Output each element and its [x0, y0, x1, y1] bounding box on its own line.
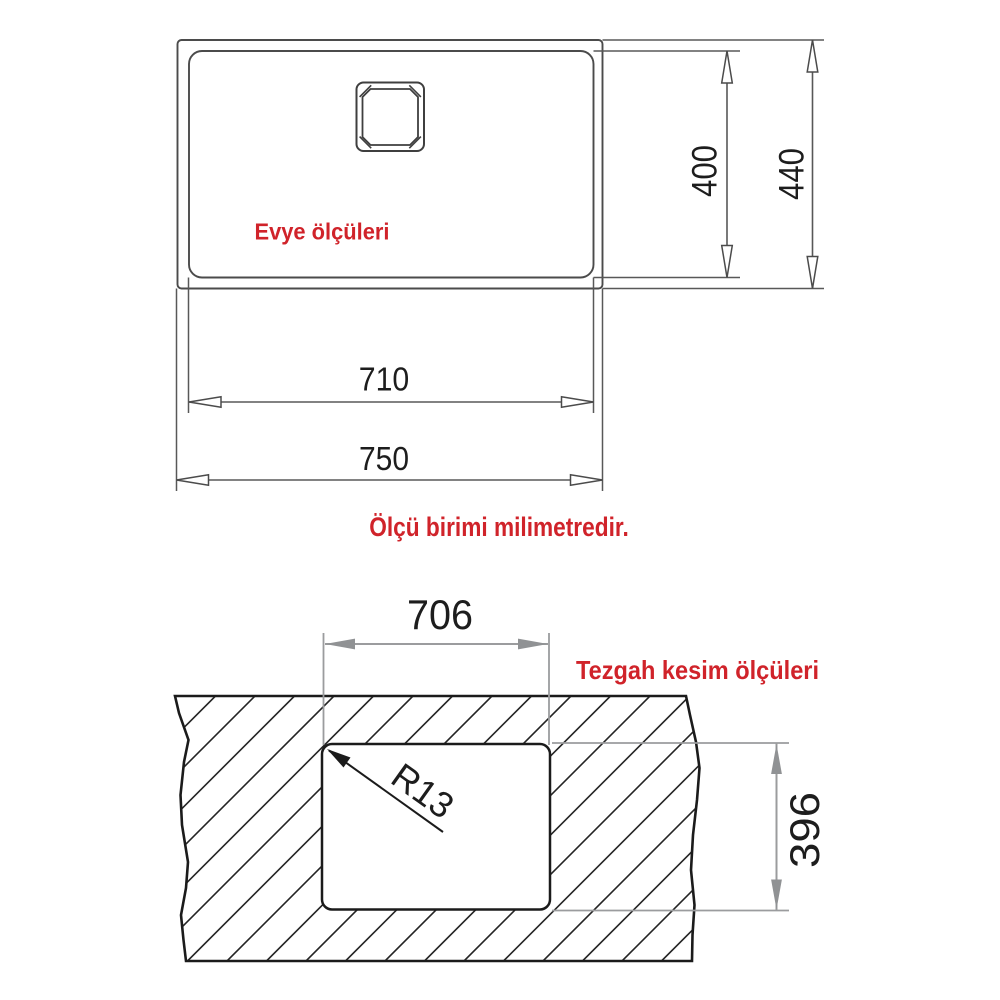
svg-text:Evye ölçüleri: Evye ölçüleri: [255, 219, 390, 245]
svg-text:750: 750: [359, 441, 409, 478]
svg-text:396: 396: [781, 792, 828, 868]
svg-text:400: 400: [686, 145, 725, 197]
svg-text:Tezgah kesim ölçüleri: Tezgah kesim ölçüleri: [576, 655, 819, 685]
svg-text:440: 440: [773, 148, 812, 200]
svg-text:Ölçü birimi milimetredir.: Ölçü birimi milimetredir.: [369, 512, 629, 542]
svg-text:706: 706: [407, 591, 473, 638]
svg-text:710: 710: [359, 362, 410, 399]
